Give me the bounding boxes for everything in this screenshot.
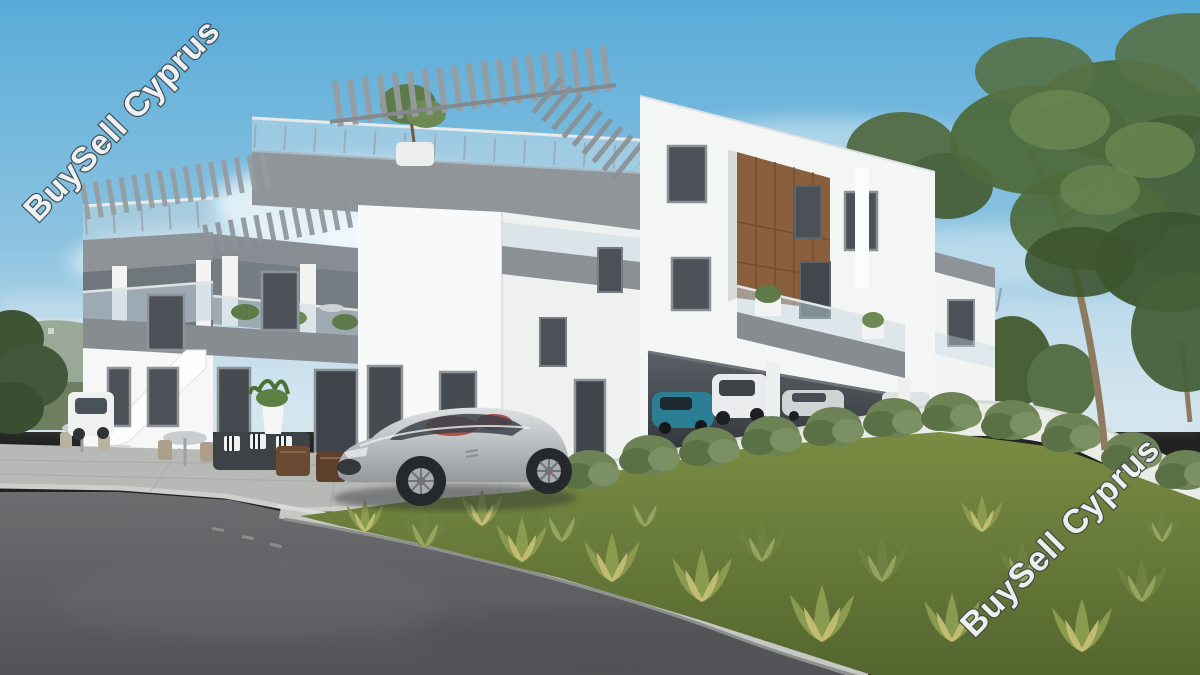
property-render-photo: BuySell Cyprus BuySell Cyprus: [0, 0, 1200, 675]
front-grille: [337, 459, 361, 475]
right-low-wing: [935, 252, 995, 412]
parked-suv-white: [712, 374, 768, 425]
white-suv-left: [68, 392, 114, 440]
scene: BuySell Cyprus BuySell Cyprus: [0, 0, 1200, 675]
